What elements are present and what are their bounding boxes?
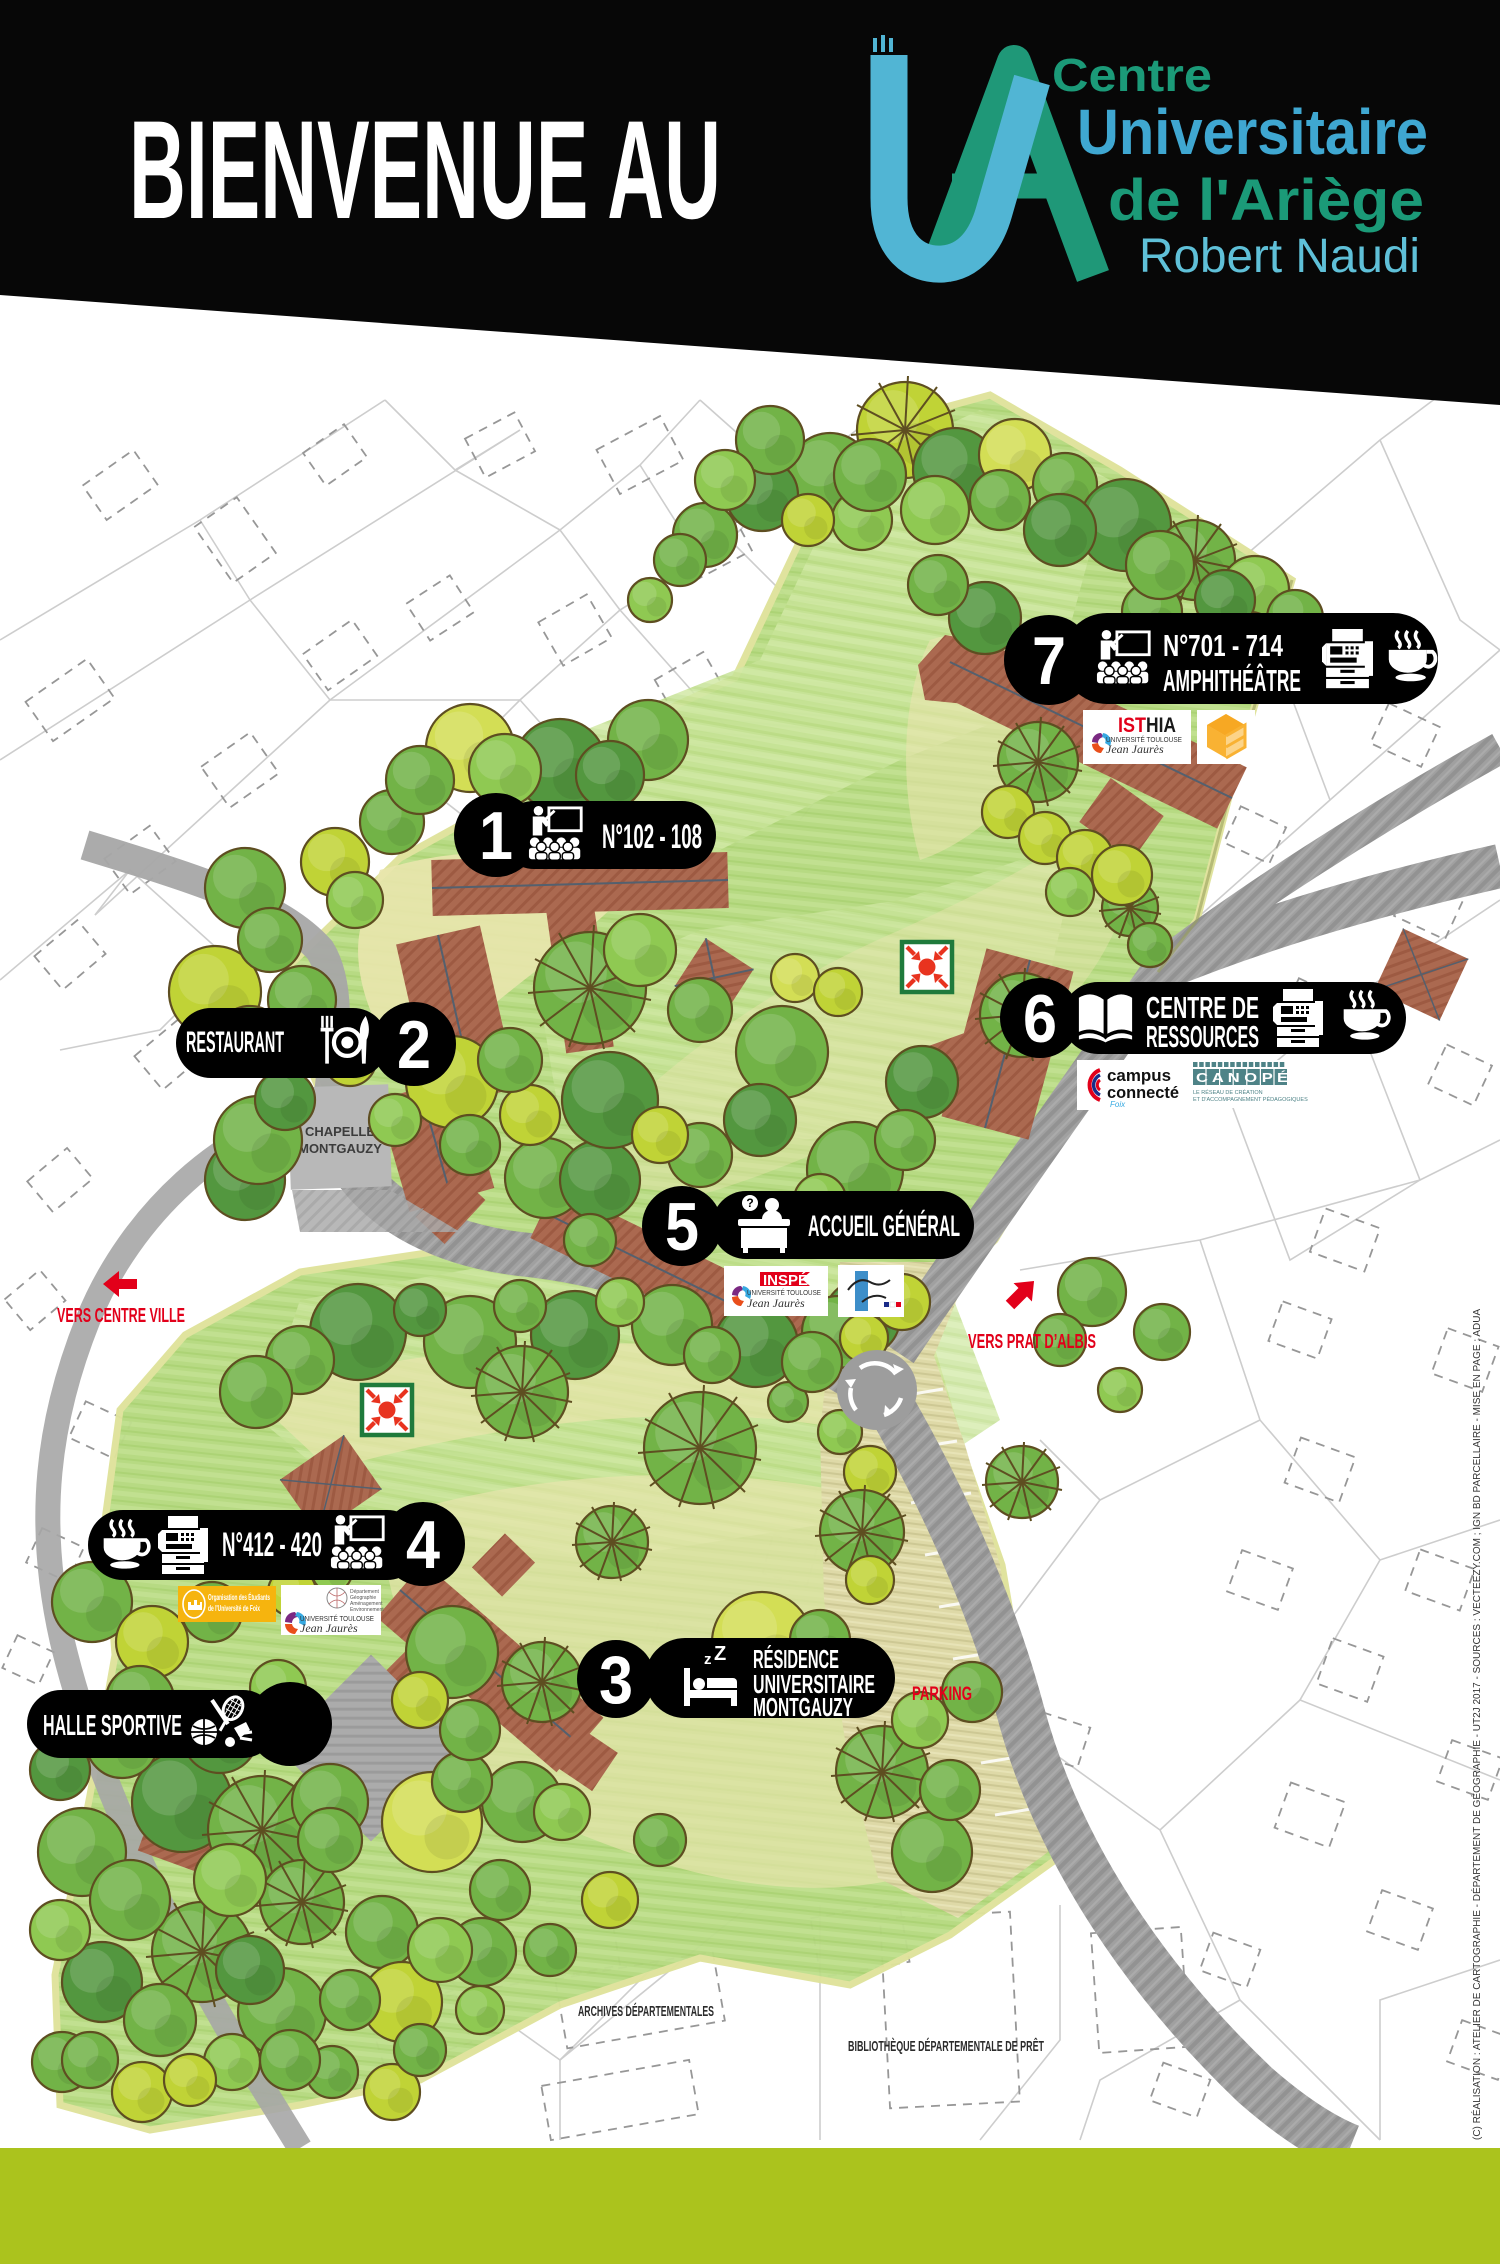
svg-text:2: 2 [397, 1007, 431, 1083]
svg-text:BIBLIOTHÈQUE DÉPARTEMENTALE DE: BIBLIOTHÈQUE DÉPARTEMENTALE DE PRÊT [848, 2037, 1044, 2055]
svg-text:Organisation des Étudiants: Organisation des Étudiants [208, 1593, 270, 1602]
svg-text:Jean Jaurès: Jean Jaurès [1106, 742, 1164, 756]
svg-text:Jean Jaurès: Jean Jaurès [300, 1621, 358, 1635]
svg-text:ACCUEIL GÉNÉRAL: ACCUEIL GÉNÉRAL [808, 1209, 960, 1243]
svg-text:Foix: Foix [1110, 1100, 1126, 1109]
svg-text:RESTAURANT: RESTAURANT [186, 1026, 284, 1059]
svg-text:BIENVENUE AU: BIENVENUE AU [129, 91, 721, 248]
svg-text:C A N O P É: C A N O P É [1196, 1070, 1288, 1085]
svg-text:IST: IST [1118, 714, 1146, 737]
svg-text:VERS PRAT D’ALBIS: VERS PRAT D’ALBIS [968, 1331, 1096, 1353]
svg-text:RESSOURCES: RESSOURCES [1146, 1019, 1259, 1054]
svg-text:7: 7 [1032, 623, 1066, 699]
svg-text:3: 3 [599, 1642, 633, 1718]
svg-text:4: 4 [406, 1507, 440, 1583]
svg-text:Centre: Centre [1052, 49, 1212, 101]
svg-text:ARCHIVES DÉPARTEMENTALES: ARCHIVES DÉPARTEMENTALES [578, 2003, 714, 2020]
svg-text:N°701 - 714: N°701 - 714 [1163, 628, 1284, 663]
svg-text:HALLE SPORTIVE: HALLE SPORTIVE [43, 1710, 182, 1742]
svg-text:LE RÉSEAU DE CRÉATION: LE RÉSEAU DE CRÉATION [1193, 1089, 1263, 1096]
svg-text:(C) RÉALISATION : ATELIER DE C: (C) RÉALISATION : ATELIER DE CARTOGRAPHI… [1470, 1309, 1483, 2140]
svg-text:Environnement: Environnement [350, 1607, 384, 1613]
svg-text:ET D'ACCOMPAGNEMENT PÉDAGOGIQU: ET D'ACCOMPAGNEMENT PÉDAGOGIQUES [1193, 1096, 1308, 1103]
svg-text:N°102 - 108: N°102 - 108 [602, 818, 702, 856]
svg-text:5: 5 [665, 1189, 699, 1265]
svg-text:1: 1 [479, 798, 513, 874]
svg-text:INSPÉ: INSPÉ [763, 1272, 808, 1289]
svg-text:Robert Naudi: Robert Naudi [1139, 230, 1420, 283]
svg-text:de l'Université de Foix: de l'Université de Foix [208, 1604, 260, 1613]
svg-text:6: 6 [1023, 981, 1057, 1057]
svg-text:AMPHITHÉÂTRE: AMPHITHÉÂTRE [1163, 662, 1301, 698]
svg-text:HIA: HIA [1146, 714, 1176, 737]
svg-text:CHAPELLE: CHAPELLE [305, 1124, 375, 1139]
svg-text:PARKING: PARKING [912, 1684, 972, 1705]
svg-text:de l'Ariège: de l'Ariège [1108, 168, 1424, 233]
svg-text:VERS CENTRE VILLE: VERS CENTRE VILLE [57, 1305, 185, 1327]
svg-text:N°412 - 420: N°412 - 420 [222, 1526, 322, 1564]
svg-text:MONTGAUZY: MONTGAUZY [753, 1692, 853, 1722]
svg-text:MONTGAUZY: MONTGAUZY [298, 1141, 382, 1156]
svg-text:Universitaire: Universitaire [1077, 96, 1428, 168]
svg-text:Jean Jaurès: Jean Jaurès [747, 1296, 805, 1310]
